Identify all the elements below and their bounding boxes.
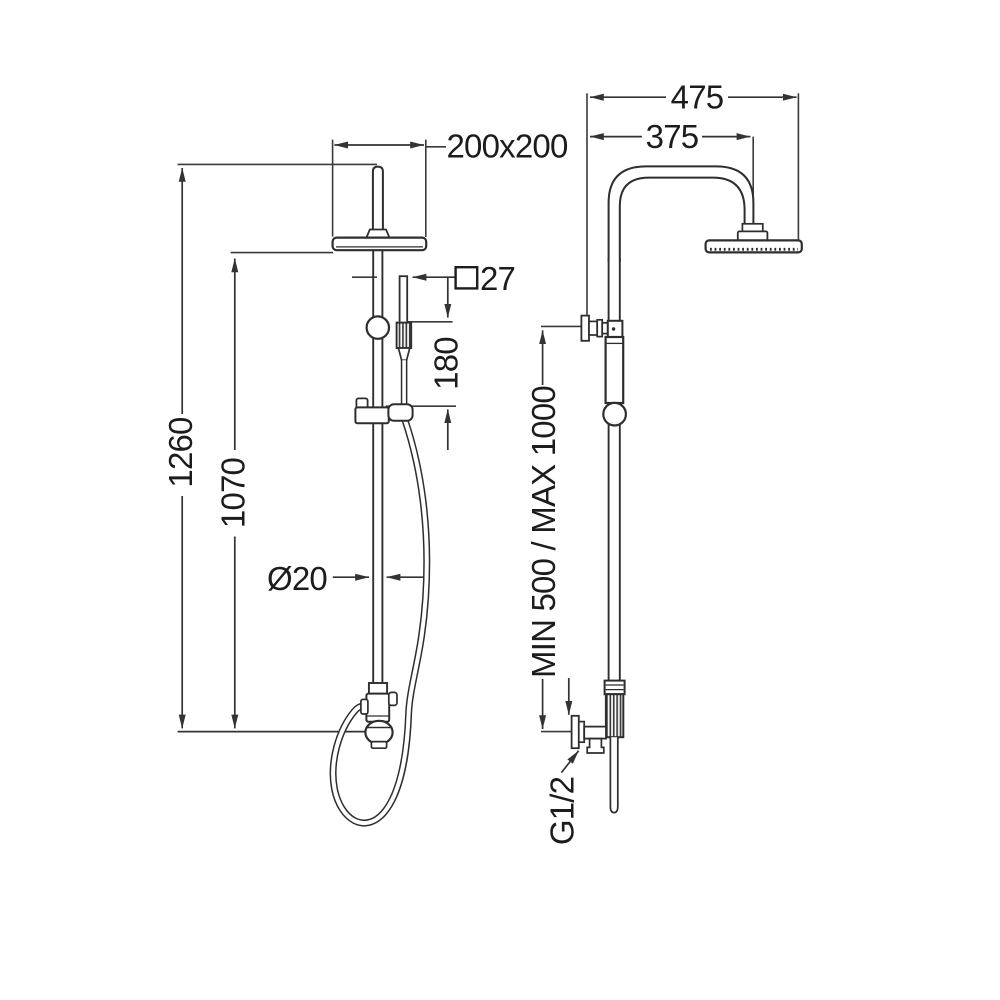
dim-column-diameter-label: Ø20	[267, 560, 327, 597]
slider-bracket	[355, 407, 388, 423]
handshower-handle	[400, 276, 408, 323]
dim-arm-overall: 475	[590, 79, 797, 116]
bracket-screw-dot	[612, 327, 615, 330]
wall-inlet-flange	[572, 716, 579, 748]
inlet-elbow	[587, 739, 604, 753]
handshower-head	[397, 323, 412, 348]
diverter-valve-front	[361, 683, 397, 748]
dim-head-size-label: 200x200	[447, 128, 568, 165]
hose-outlet-ball	[365, 721, 392, 744]
dim-arm-projection: 375	[590, 118, 750, 155]
dim-handshower-length-label: 180	[428, 337, 465, 390]
dim-riser-adjustment-label: MIN 500 / MAX 1000	[525, 386, 562, 678]
dim-arm-projection-label: 375	[646, 118, 699, 155]
column-adjuster-sleeve	[606, 694, 623, 737]
handshower-side	[606, 337, 624, 403]
dim-head-underside-height: 1070	[215, 253, 334, 729]
holder-ball-side	[603, 403, 626, 426]
dim-handle-square-label: 27	[480, 260, 515, 297]
dim-arm-overall-label: 475	[671, 79, 724, 116]
diverter-knob	[389, 692, 397, 705]
handshower-holder	[388, 404, 412, 421]
rain-head-front	[333, 238, 427, 251]
lower-pipe-side	[610, 737, 617, 812]
front-view: 1260 1070 200x200	[162, 128, 568, 824]
shower-technical-drawing: 1260 1070 200x200	[0, 0, 1000, 1000]
front-view-fixture	[333, 167, 427, 823]
handshower-hose-nut	[398, 348, 409, 360]
side-view-dimensions-behind: 475 375 MIN 500 / MAX 1000 G	[525, 79, 798, 846]
dim-riser-adjustment: MIN 500 / MAX 1000	[525, 326, 581, 731]
dim-inlet-thread: G1/2	[544, 678, 581, 845]
inlet-pipe	[584, 727, 606, 739]
dim-handle-square: 27	[352, 260, 515, 318]
side-view: 475 375 MIN 500 / MAX 1000 G	[525, 79, 802, 846]
dim-head-size: 200x200	[333, 128, 568, 238]
dim-column-diameter: Ø20	[267, 560, 428, 597]
dim-inlet-thread-label: G1/2	[544, 777, 581, 845]
column-union-ball	[367, 316, 389, 338]
square-symbol-icon	[456, 267, 478, 288]
ceiling-supply-pipe	[373, 167, 383, 231]
side-view-fixture	[572, 166, 802, 812]
dim-head-underside-height-label: 1070	[215, 457, 252, 528]
dim-total-height-label: 1260	[162, 417, 199, 488]
drawing-canvas: 1260 1070 200x200	[0, 0, 1000, 1000]
front-view-dimensions: 1260 1070 200x200	[162, 128, 568, 732]
shower-hose-loop	[333, 421, 427, 823]
